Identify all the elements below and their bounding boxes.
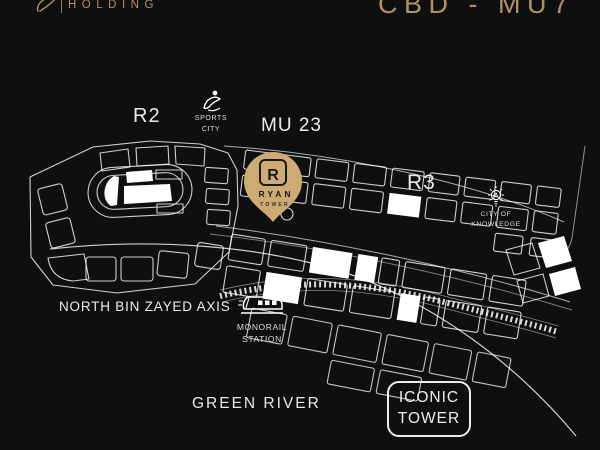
map-pin-icon: R RYAN TOWER (244, 152, 302, 222)
train-icon (238, 291, 286, 321)
holding-brand-word: HOLDING (68, 0, 159, 11)
iconic-tower-label-line1: ICONIC (393, 388, 465, 409)
holding-logo-icon (28, 0, 60, 16)
green-river-label: GREEN RIVER (192, 395, 321, 413)
district-label-r2: R2 (133, 105, 161, 128)
project-code-title: CBD - MU7 (378, 0, 575, 20)
district-label-mu23: MU 23 (261, 115, 322, 137)
sports-city-label-line2: CITY (183, 125, 239, 136)
landmark-sports-city: SPORTS CITY (183, 88, 239, 135)
logo-divider (61, 0, 62, 13)
pin-sub-label: TOWER (260, 202, 290, 208)
sports-city-label-line1: SPORTS (183, 114, 239, 125)
city-of-knowledge-label-line1: CITY OF (462, 210, 530, 220)
lightbulb-icon (483, 184, 509, 210)
pin-brand-label: RYAN (259, 189, 294, 199)
gymnast-icon (196, 88, 226, 114)
pin-monogram: R (267, 167, 279, 184)
monorail-station-label-line2: STATION (227, 333, 297, 345)
district-r2-blocks (30, 141, 238, 293)
city-of-knowledge-label-line2: KNOWLEDGE (462, 220, 530, 230)
north-bin-zayed-axis-label: NORTH BIN ZAYED AXIS (59, 299, 231, 314)
monorail-station-label-line1: MONORAIL (227, 321, 297, 333)
landmark-monorail-station: MONORAIL STATION (227, 291, 297, 346)
masterplan-poster: R RYAN TOWER HOLDING CBD - MU7 R2 MU 23 … (0, 0, 600, 450)
iconic-tower-label-line2: TOWER (393, 409, 465, 430)
district-label-r3: R3 (407, 171, 436, 195)
landmark-city-of-knowledge: CITY OF KNOWLEDGE (462, 184, 530, 230)
iconic-tower-badge: ICONIC TOWER (387, 381, 471, 437)
